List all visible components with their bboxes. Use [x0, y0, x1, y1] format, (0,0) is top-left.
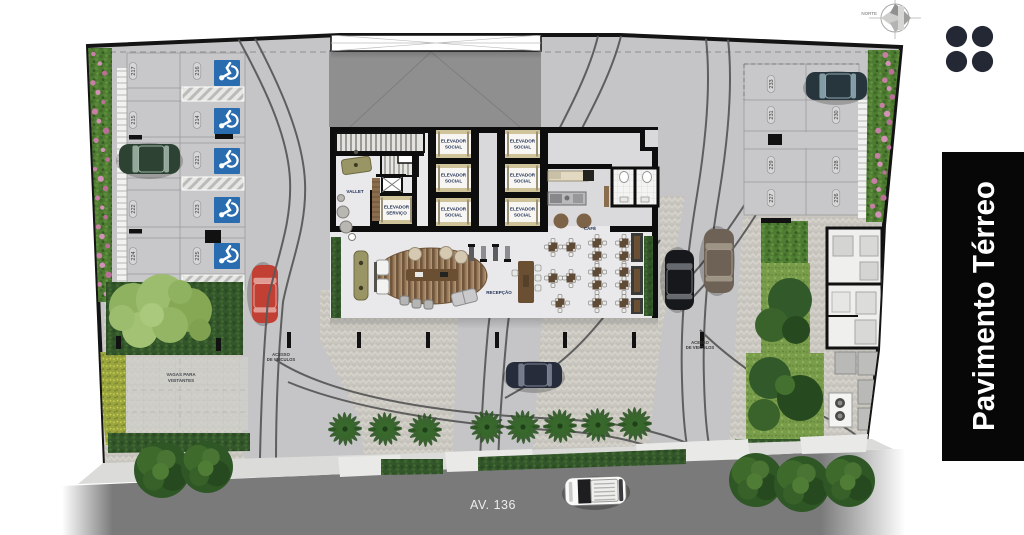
svg-text:221: 221: [195, 155, 201, 164]
svg-text:ELEVADOR: ELEVADOR: [384, 205, 410, 210]
svg-text:ELEVADOR: ELEVADOR: [510, 207, 536, 212]
svg-text:216: 216: [195, 66, 201, 75]
svg-text:226: 226: [834, 193, 840, 202]
svg-text:SOCIAL: SOCIAL: [514, 145, 532, 150]
svg-text:Pavimento Térreo: Pavimento Térreo: [966, 181, 1001, 431]
svg-text:233: 233: [769, 79, 775, 88]
svg-text:DE VEICULOS: DE VEICULOS: [267, 357, 296, 362]
svg-text:222: 222: [131, 204, 137, 213]
svg-text:SOCIAL: SOCIAL: [445, 145, 463, 150]
svg-text:SERVIÇO: SERVIÇO: [386, 211, 407, 216]
svg-text:ELEVADOR: ELEVADOR: [510, 173, 536, 178]
svg-text:227: 227: [769, 193, 775, 202]
svg-text:ELEVADOR: ELEVADOR: [441, 139, 467, 144]
svg-text:214: 214: [195, 115, 201, 124]
svg-text:NORTE: NORTE: [861, 11, 877, 16]
svg-text:VISITANTES: VISITANTES: [168, 378, 194, 383]
svg-text:ELEVADOR: ELEVADOR: [510, 139, 536, 144]
svg-text:228: 228: [834, 160, 840, 169]
svg-text:SOCIAL: SOCIAL: [445, 213, 463, 218]
svg-text:223: 223: [195, 204, 201, 213]
svg-text:DE VEICULOS: DE VEICULOS: [686, 345, 715, 350]
svg-text:217: 217: [131, 66, 137, 75]
svg-text:VALLET: VALLET: [346, 189, 363, 194]
svg-text:CAFÉ: CAFÉ: [584, 224, 596, 231]
svg-text:RECEPÇÃO: RECEPÇÃO: [486, 289, 512, 295]
svg-text:215: 215: [131, 115, 137, 124]
svg-text:224: 224: [131, 251, 137, 260]
svg-text:VAGAS PARA: VAGAS PARA: [166, 372, 196, 377]
svg-text:SOCIAL: SOCIAL: [514, 179, 532, 184]
svg-text:225: 225: [195, 251, 201, 260]
svg-text:AV. 136: AV. 136: [470, 498, 516, 512]
svg-text:ELEVADOR: ELEVADOR: [441, 207, 467, 212]
svg-text:ELEVADOR: ELEVADOR: [441, 173, 467, 178]
svg-text:229: 229: [769, 160, 775, 169]
svg-text:SOCIAL: SOCIAL: [514, 213, 532, 218]
svg-text:230: 230: [834, 110, 840, 119]
svg-text:231: 231: [769, 110, 775, 119]
svg-text:SOCIAL: SOCIAL: [445, 179, 463, 184]
